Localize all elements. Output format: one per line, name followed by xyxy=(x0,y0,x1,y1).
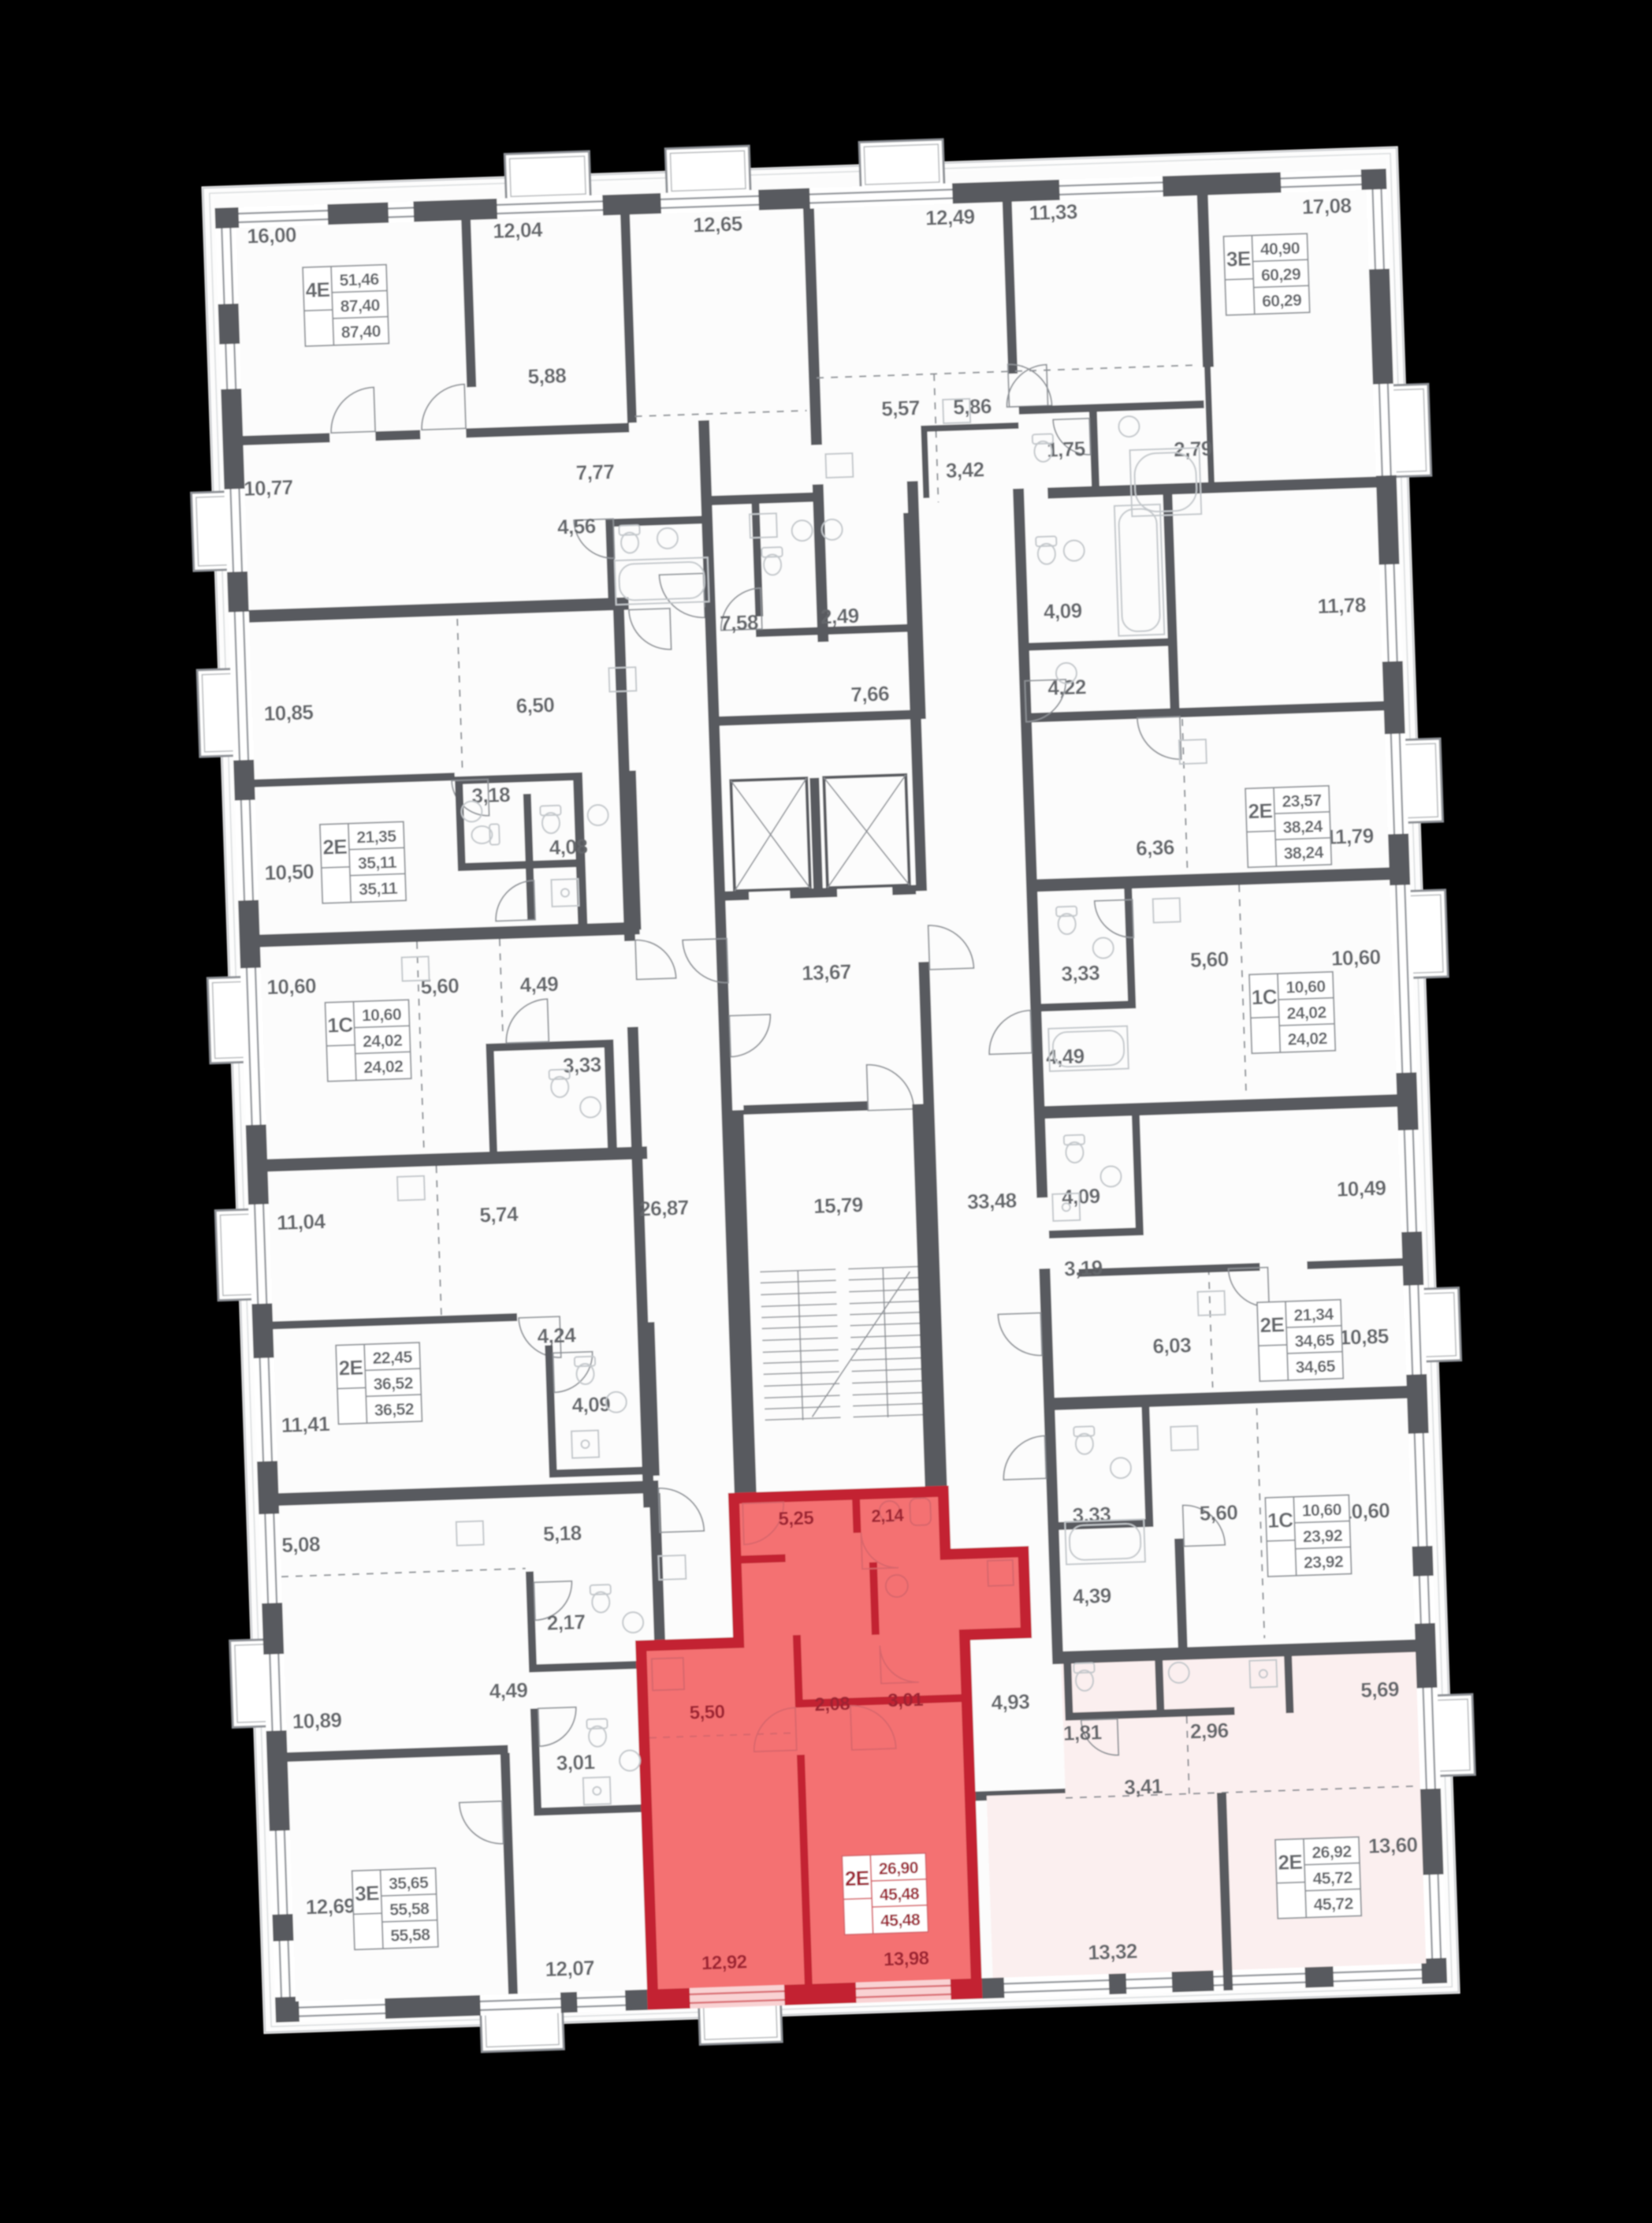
svg-text:5,50: 5,50 xyxy=(689,1701,725,1723)
svg-text:55,58: 55,58 xyxy=(389,1900,430,1920)
svg-text:4,09: 4,09 xyxy=(1062,1184,1101,1209)
svg-text:45,48: 45,48 xyxy=(880,1885,921,1905)
svg-text:11,78: 11,78 xyxy=(1317,593,1366,618)
svg-text:4,56: 4,56 xyxy=(557,514,597,539)
svg-text:4,24: 4,24 xyxy=(537,1323,577,1348)
svg-text:21,34: 21,34 xyxy=(1293,1305,1334,1325)
svg-text:36,52: 36,52 xyxy=(373,1374,413,1394)
svg-text:2,49: 2,49 xyxy=(820,604,860,629)
svg-text:13,32: 13,32 xyxy=(1088,1939,1138,1964)
svg-text:2,08: 2,08 xyxy=(814,1693,850,1715)
svg-text:35,65: 35,65 xyxy=(389,1874,430,1893)
svg-text:13,60: 13,60 xyxy=(1367,1833,1418,1858)
svg-text:3,33: 3,33 xyxy=(1061,961,1100,986)
svg-text:11,33: 11,33 xyxy=(1029,199,1077,225)
svg-text:3,19: 3,19 xyxy=(1064,1256,1103,1281)
svg-text:7,66: 7,66 xyxy=(850,682,890,707)
svg-text:87,40: 87,40 xyxy=(340,322,381,342)
svg-text:87,40: 87,40 xyxy=(340,296,380,316)
svg-text:60,29: 60,29 xyxy=(1261,266,1301,285)
svg-text:5,88: 5,88 xyxy=(527,363,567,389)
svg-text:5,69: 5,69 xyxy=(1360,1677,1400,1702)
svg-text:23,92: 23,92 xyxy=(1303,1527,1343,1547)
svg-text:11,79: 11,79 xyxy=(1325,824,1374,849)
svg-text:33,48: 33,48 xyxy=(967,1188,1018,1213)
svg-text:3,33: 3,33 xyxy=(1072,1502,1111,1528)
svg-text:5,74: 5,74 xyxy=(479,1202,519,1227)
svg-text:3,42: 3,42 xyxy=(945,457,984,482)
svg-text:10,77: 10,77 xyxy=(244,475,294,501)
svg-text:24,02: 24,02 xyxy=(1286,1004,1326,1023)
svg-text:10,60: 10,60 xyxy=(1302,1501,1342,1521)
svg-text:4,49: 4,49 xyxy=(519,972,559,997)
svg-text:5,60: 5,60 xyxy=(1199,1500,1238,1525)
svg-text:6,50: 6,50 xyxy=(515,693,555,718)
svg-text:3E: 3E xyxy=(355,1881,380,1905)
svg-text:1C: 1C xyxy=(327,1013,354,1037)
svg-text:55,58: 55,58 xyxy=(390,1926,431,1946)
svg-text:23,57: 23,57 xyxy=(1282,791,1322,811)
svg-text:5,60: 5,60 xyxy=(1189,947,1229,972)
svg-text:45,72: 45,72 xyxy=(1312,1869,1352,1889)
svg-text:3,01: 3,01 xyxy=(556,1750,595,1775)
svg-text:36,52: 36,52 xyxy=(374,1400,415,1420)
svg-text:7,77: 7,77 xyxy=(575,460,615,485)
svg-text:6,03: 6,03 xyxy=(1152,1333,1192,1358)
svg-text:17,08: 17,08 xyxy=(1301,193,1352,218)
svg-text:51,46: 51,46 xyxy=(339,270,379,290)
svg-text:1,81: 1,81 xyxy=(1062,1720,1102,1745)
svg-text:34,65: 34,65 xyxy=(1295,1357,1336,1377)
svg-text:60,29: 60,29 xyxy=(1262,292,1302,311)
svg-text:10,49: 10,49 xyxy=(1336,1176,1386,1201)
svg-text:10,89: 10,89 xyxy=(292,1708,342,1733)
svg-text:13,98: 13,98 xyxy=(884,1948,930,1971)
svg-text:45,48: 45,48 xyxy=(880,1911,921,1931)
svg-text:40,90: 40,90 xyxy=(1260,240,1300,259)
svg-text:22,45: 22,45 xyxy=(372,1348,413,1368)
svg-text:26,90: 26,90 xyxy=(879,1859,919,1879)
svg-text:38,24: 38,24 xyxy=(1282,817,1323,837)
svg-text:10,60: 10,60 xyxy=(1286,977,1326,997)
svg-text:2,14: 2,14 xyxy=(871,1505,905,1525)
svg-text:13,67: 13,67 xyxy=(802,959,852,985)
svg-text:11,04: 11,04 xyxy=(277,1209,326,1234)
svg-text:26,92: 26,92 xyxy=(1312,1843,1352,1863)
svg-text:15,79: 15,79 xyxy=(813,1193,864,1218)
svg-text:12,49: 12,49 xyxy=(925,205,976,230)
svg-text:4,39: 4,39 xyxy=(1073,1584,1112,1609)
svg-text:26,87: 26,87 xyxy=(639,1195,690,1220)
svg-text:12,04: 12,04 xyxy=(493,218,544,243)
svg-text:21,35: 21,35 xyxy=(356,828,397,847)
svg-text:5,60: 5,60 xyxy=(420,974,460,999)
svg-text:45,72: 45,72 xyxy=(1313,1895,1353,1915)
svg-text:16,00: 16,00 xyxy=(247,223,297,248)
svg-text:1C: 1C xyxy=(1267,1508,1294,1532)
svg-text:34,65: 34,65 xyxy=(1294,1331,1335,1351)
svg-text:4,22: 4,22 xyxy=(1047,675,1087,700)
svg-text:12,65: 12,65 xyxy=(693,211,743,236)
svg-text:10,60: 10,60 xyxy=(266,974,317,999)
svg-text:2E: 2E xyxy=(338,1355,363,1380)
svg-text:2E: 2E xyxy=(1259,1313,1285,1337)
svg-text:38,24: 38,24 xyxy=(1283,843,1324,863)
svg-text:23,92: 23,92 xyxy=(1304,1553,1344,1573)
svg-text:5,86: 5,86 xyxy=(953,394,992,419)
svg-text:3,01: 3,01 xyxy=(887,1689,924,1711)
svg-text:12,07: 12,07 xyxy=(545,1956,595,1981)
svg-text:1C: 1C xyxy=(1251,985,1278,1009)
svg-text:4,49: 4,49 xyxy=(489,1678,528,1704)
svg-text:35,11: 35,11 xyxy=(358,854,397,873)
svg-text:3,41: 3,41 xyxy=(1124,1774,1163,1800)
svg-text:24,02: 24,02 xyxy=(363,1058,404,1078)
svg-text:35,11: 35,11 xyxy=(359,880,398,899)
svg-text:5,08: 5,08 xyxy=(281,1532,321,1557)
svg-text:11,41: 11,41 xyxy=(281,1412,329,1437)
svg-text:5,18: 5,18 xyxy=(543,1521,582,1546)
svg-text:12,92: 12,92 xyxy=(701,1952,748,1975)
svg-text:3,18: 3,18 xyxy=(471,783,511,808)
svg-text:12,69: 12,69 xyxy=(305,1893,355,1919)
svg-text:5,57: 5,57 xyxy=(881,396,921,421)
svg-text:7,58: 7,58 xyxy=(720,610,759,635)
svg-text:2E: 2E xyxy=(322,835,348,859)
svg-text:4,09: 4,09 xyxy=(1043,598,1082,624)
svg-text:2E: 2E xyxy=(1278,1850,1303,1875)
svg-text:4E: 4E xyxy=(305,277,330,302)
svg-text:4,08: 4,08 xyxy=(549,835,588,860)
svg-text:4,49: 4,49 xyxy=(1046,1044,1085,1069)
svg-text:10,85: 10,85 xyxy=(263,700,314,725)
svg-text:10,60: 10,60 xyxy=(1331,945,1382,970)
svg-text:10,85: 10,85 xyxy=(1339,1324,1390,1350)
svg-text:10,50: 10,50 xyxy=(264,859,314,884)
svg-text:2,17: 2,17 xyxy=(546,1610,586,1635)
svg-text:10,60: 10,60 xyxy=(362,1006,402,1026)
svg-text:4,09: 4,09 xyxy=(571,1392,611,1417)
svg-text:24,02: 24,02 xyxy=(1287,1030,1327,1049)
svg-text:2,96: 2,96 xyxy=(1189,1718,1229,1744)
svg-text:24,02: 24,02 xyxy=(363,1032,403,1052)
svg-text:4,93: 4,93 xyxy=(991,1689,1030,1715)
svg-text:6,36: 6,36 xyxy=(1136,835,1175,860)
svg-text:3,33: 3,33 xyxy=(563,1052,602,1078)
svg-text:2E: 2E xyxy=(1248,799,1273,823)
svg-text:5,25: 5,25 xyxy=(778,1507,814,1529)
svg-text:3E: 3E xyxy=(1226,247,1251,271)
svg-text:2E: 2E xyxy=(844,1866,869,1890)
